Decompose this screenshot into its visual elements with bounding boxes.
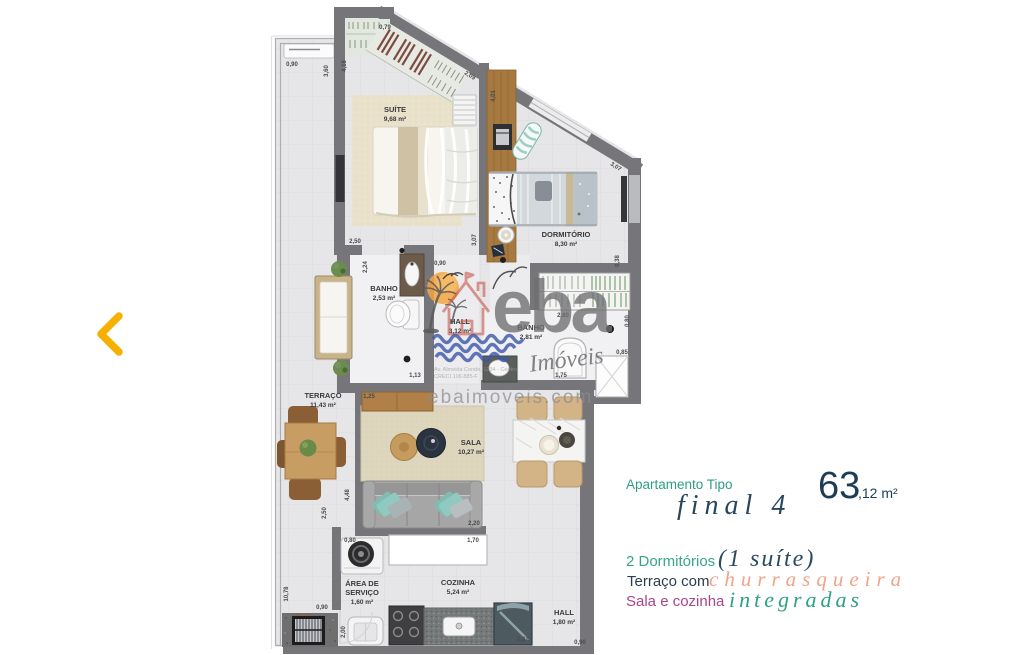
- svg-text:2,53 m²: 2,53 m²: [373, 295, 396, 302]
- svg-text:8,30 m²: 8,30 m²: [555, 241, 578, 248]
- svg-text:1,13: 1,13: [409, 373, 421, 379]
- svg-text:1,60 m²: 1,60 m²: [351, 599, 374, 606]
- svg-text:2,50: 2,50: [349, 239, 361, 245]
- svg-text:3,07: 3,07: [472, 234, 478, 246]
- svg-text:ÁREA DE: ÁREA DE: [345, 579, 378, 588]
- svg-text:CRECI 106.885-F: CRECI 106.885-F: [434, 374, 478, 380]
- svg-text:Av. Almeida Conde, 1234 - Cent: Av. Almeida Conde, 1234 - Centro: [434, 367, 517, 373]
- svg-text:9,68 m²: 9,68 m²: [384, 116, 407, 123]
- svg-text:2,00: 2,00: [341, 626, 347, 638]
- svg-text:Sala e cozinha: Sala e cozinha: [626, 593, 725, 610]
- svg-text:0,90: 0,90: [574, 640, 586, 646]
- svg-text:ebaimoveis.com: ebaimoveis.com: [428, 387, 593, 408]
- svg-text:4,18: 4,18: [342, 60, 348, 72]
- svg-text:TERRAÇO: TERRAÇO: [304, 391, 341, 400]
- svg-text:3,60: 3,60: [324, 65, 330, 77]
- svg-text:Terraço com: Terraço com: [627, 573, 710, 590]
- svg-text:SERVIÇO: SERVIÇO: [345, 588, 379, 597]
- svg-text:SUÍTE: SUÍTE: [384, 105, 406, 114]
- svg-text:0,90: 0,90: [286, 62, 298, 68]
- svg-text:2,50: 2,50: [322, 507, 328, 519]
- svg-text:0,79: 0,79: [379, 25, 391, 31]
- svg-text:HALL: HALL: [554, 608, 574, 617]
- svg-text:11,43 m²: 11,43 m²: [310, 402, 336, 409]
- svg-text:63: 63: [818, 465, 860, 507]
- svg-text:2 Dormitórios: 2 Dormitórios: [626, 553, 715, 570]
- svg-text:SALA: SALA: [461, 438, 482, 447]
- svg-text:0,38: 0,38: [615, 255, 621, 267]
- svg-text:1,70: 1,70: [467, 538, 479, 544]
- svg-text:BANHO: BANHO: [370, 284, 398, 293]
- svg-text:,12 m²: ,12 m²: [858, 485, 898, 501]
- svg-text:0,80: 0,80: [625, 315, 631, 327]
- svg-text:5,24 m²: 5,24 m²: [447, 589, 470, 596]
- svg-text:1,80 m²: 1,80 m²: [553, 619, 576, 626]
- svg-text:0,85: 0,85: [616, 350, 628, 356]
- svg-text:10,78: 10,78: [284, 586, 290, 602]
- svg-text:COZINHA: COZINHA: [441, 578, 476, 587]
- svg-text:integradas: integradas: [729, 587, 863, 612]
- svg-text:0,80: 0,80: [344, 538, 356, 544]
- svg-text:4,48: 4,48: [345, 489, 351, 501]
- svg-text:1,25: 1,25: [363, 394, 375, 400]
- svg-text:final 4: final 4: [677, 490, 791, 521]
- svg-text:10,27 m²: 10,27 m²: [458, 449, 485, 456]
- svg-text:2,24: 2,24: [363, 261, 369, 273]
- svg-text:0,90: 0,90: [434, 261, 446, 267]
- svg-text:4,01: 4,01: [491, 90, 497, 102]
- svg-text:0,90: 0,90: [316, 605, 328, 611]
- svg-text:DORMITÓRIO: DORMITÓRIO: [542, 230, 591, 239]
- svg-text:2,20: 2,20: [468, 521, 480, 527]
- svg-text:2,62: 2,62: [517, 637, 529, 643]
